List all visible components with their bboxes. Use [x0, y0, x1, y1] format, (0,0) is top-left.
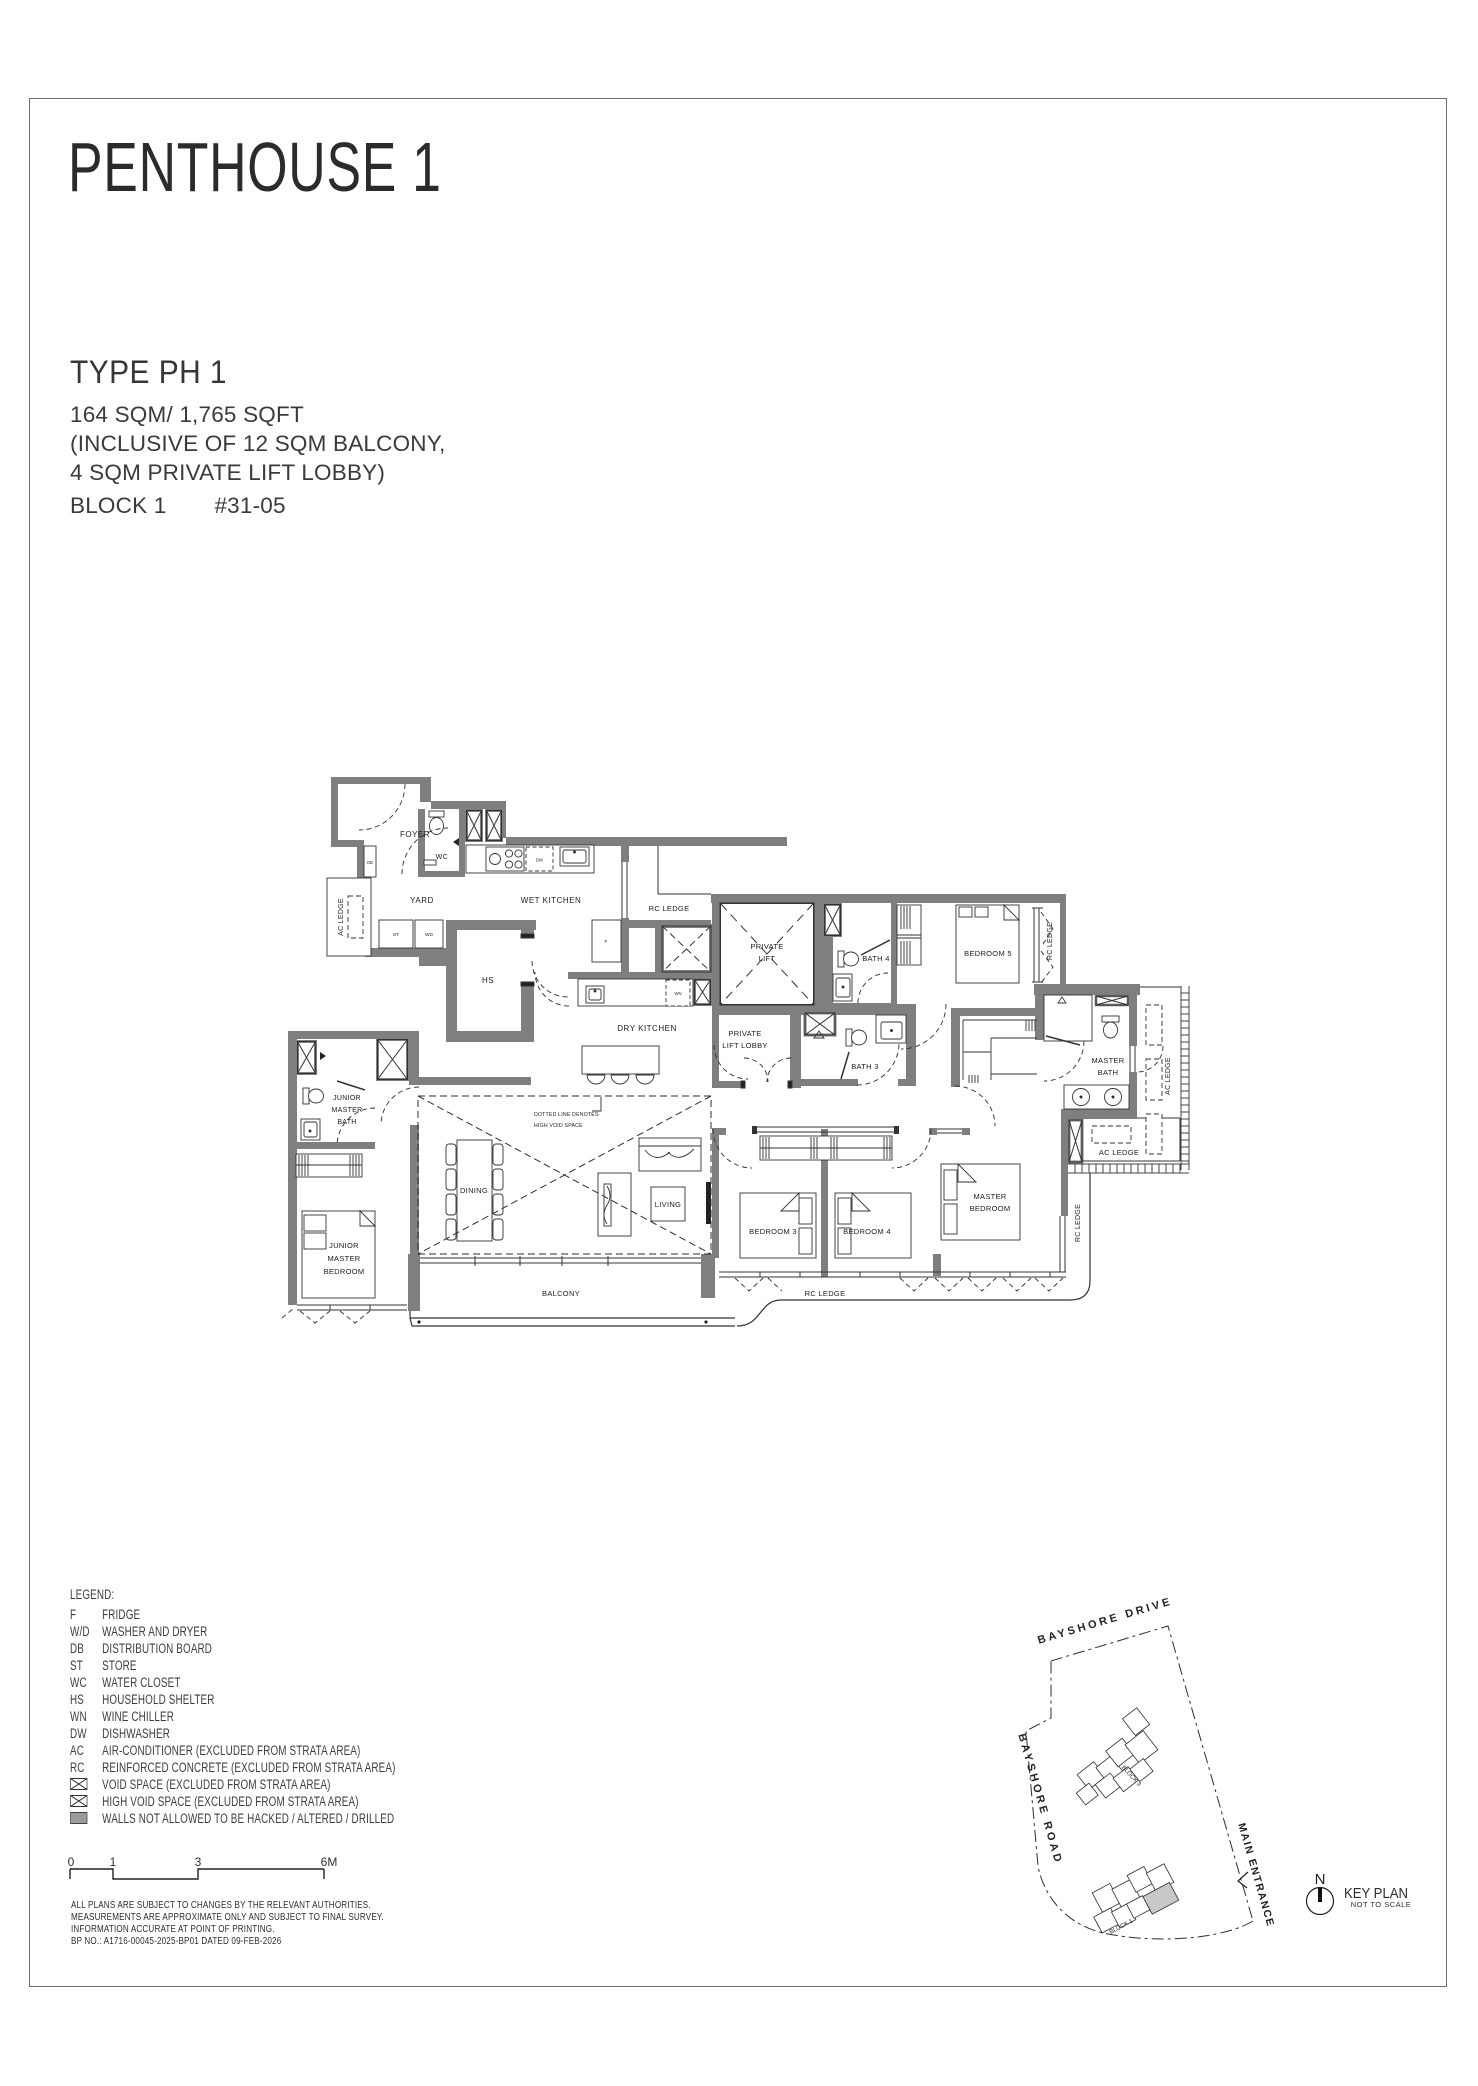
svg-text:BATH: BATH: [337, 1119, 356, 1126]
svg-text:F: F: [605, 939, 608, 945]
svg-text:JUNIOR: JUNIOR: [329, 1241, 359, 1250]
svg-text:AC LEDGE: AC LEDGE: [1165, 1057, 1172, 1095]
svg-text:WD: WD: [425, 932, 434, 938]
svg-text:JUNIOR: JUNIOR: [333, 1095, 361, 1102]
svg-text:RC LEDGE: RC LEDGE: [1047, 922, 1054, 960]
svg-text:BAYSHORE DRIVE: BAYSHORE DRIVE: [1036, 1595, 1174, 1646]
svg-text:MASTER: MASTER: [327, 1254, 360, 1263]
svg-text:DRY KITCHEN: DRY KITCHEN: [617, 1024, 676, 1033]
svg-text:FOYER: FOYER: [400, 830, 430, 839]
svg-text:0: 0: [68, 1855, 75, 1869]
svg-text:3: 3: [195, 1855, 202, 1869]
svg-text:WET KITCHEN: WET KITCHEN: [521, 896, 581, 905]
svg-text:BATH: BATH: [1098, 1068, 1119, 1077]
svg-text:BAYSHORE ROAD: BAYSHORE ROAD: [1015, 1732, 1064, 1866]
svg-text:MASTER: MASTER: [1091, 1056, 1124, 1065]
svg-text:6M: 6M: [321, 1855, 338, 1869]
svg-text:HIGH VOID SPACE: HIGH VOID SPACE: [534, 1123, 583, 1129]
svg-text:RC LEDGE: RC LEDGE: [805, 1289, 846, 1298]
svg-text:BEDROOM: BEDROOM: [970, 1204, 1011, 1213]
svg-text:NOT TO SCALE: NOT TO SCALE: [1351, 1900, 1412, 1909]
svg-text:LIFT LOBBY: LIFT LOBBY: [722, 1041, 767, 1050]
svg-text:RC LEDGE: RC LEDGE: [649, 904, 690, 913]
svg-text:BEDROOM: BEDROOM: [324, 1267, 365, 1276]
svg-text:BEDROOM 5: BEDROOM 5: [964, 949, 1012, 958]
svg-text:N: N: [1315, 1871, 1326, 1888]
svg-text:MAIN ENTRANCE: MAIN ENTRANCE: [1235, 1822, 1276, 1929]
svg-text:DOTTED LINE DENOTES: DOTTED LINE DENOTES: [534, 1112, 599, 1118]
svg-text:AC LEDGE: AC LEDGE: [1099, 1148, 1139, 1157]
svg-text:BATH 4: BATH 4: [862, 954, 890, 963]
svg-text:AC LEDGE: AC LEDGE: [338, 898, 345, 936]
svg-text:LIVING: LIVING: [655, 1200, 681, 1209]
svg-text:DB: DB: [367, 860, 373, 865]
svg-text:HS: HS: [482, 976, 494, 985]
svg-text:BEDROOM 4: BEDROOM 4: [843, 1227, 891, 1236]
svg-text:YARD: YARD: [410, 896, 434, 905]
svg-text:1: 1: [110, 1855, 117, 1869]
svg-text:LIFT: LIFT: [759, 954, 776, 963]
svg-text:BEDROOM 3: BEDROOM 3: [749, 1227, 797, 1236]
svg-text:PRIVATE: PRIVATE: [728, 1029, 761, 1038]
svg-text:MASTER: MASTER: [332, 1107, 363, 1114]
svg-text:DW: DW: [536, 858, 543, 863]
svg-text:MASTER: MASTER: [973, 1192, 1006, 1201]
svg-text:ST: ST: [393, 932, 399, 938]
svg-text:WC: WC: [436, 854, 449, 861]
svg-text:PRIVATE: PRIVATE: [750, 942, 783, 951]
svg-text:WN: WN: [675, 991, 682, 996]
svg-text:BATH 3: BATH 3: [851, 1062, 879, 1071]
svg-text:RC LEDGE: RC LEDGE: [1075, 1204, 1082, 1242]
svg-text:BALCONY: BALCONY: [542, 1289, 580, 1298]
svg-text:DINING: DINING: [460, 1186, 488, 1195]
